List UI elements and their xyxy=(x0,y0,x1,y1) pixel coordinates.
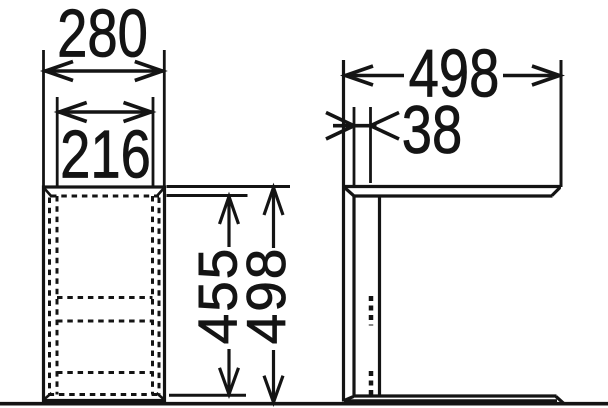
svg-text:280: 280 xyxy=(57,0,148,72)
svg-text:498: 498 xyxy=(235,247,297,345)
svg-text:216: 216 xyxy=(60,117,151,193)
svg-text:38: 38 xyxy=(402,92,463,168)
